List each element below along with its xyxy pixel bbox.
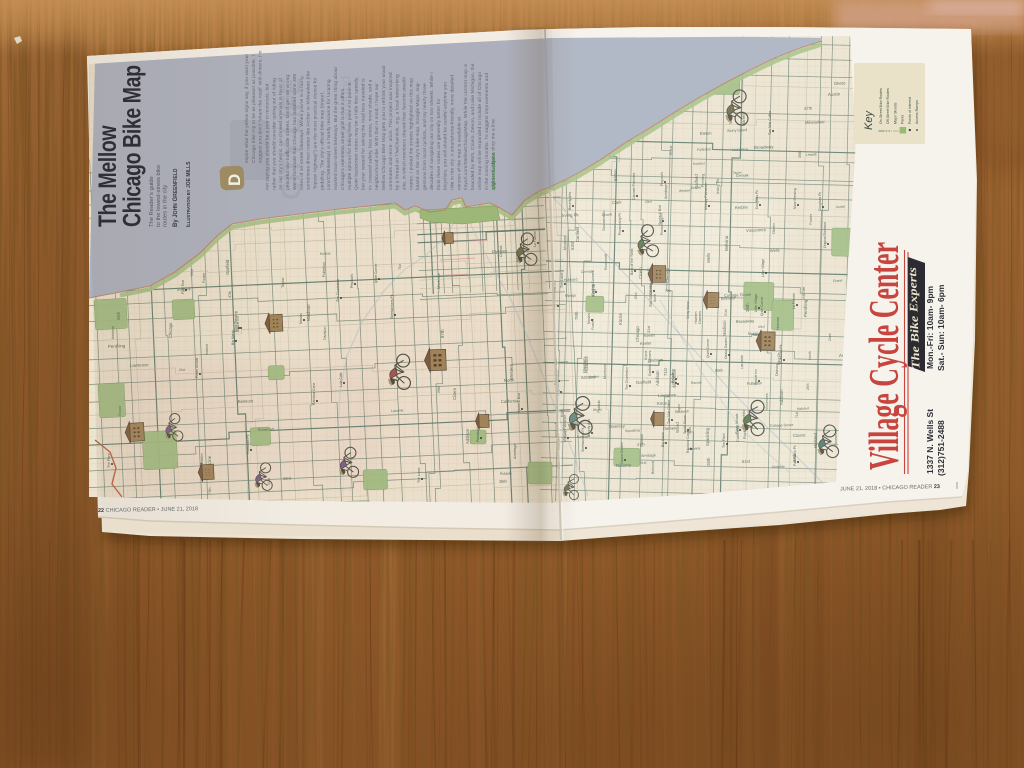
svg-text:@greenfieldjohn: @greenfieldjohn	[491, 152, 497, 190]
svg-text:version of the map is availabl: version of the map is available at	[456, 116, 462, 190]
svg-text:On-Street Bike Routes: On-Street Bike Routes	[879, 88, 883, 124]
svg-text:online map will be expanded to: online map will be expanded to include a…	[477, 72, 483, 190]
svg-text:not saying you should be a jer: not saying you should be a jerk to motor…	[265, 83, 271, 190]
svg-text:Chicago's relentless street gr: Chicago's relentless street grid is that…	[340, 88, 346, 190]
svg-text:com/ChiBikeMap) is a handy res: com/ChiBikeMap) is a handy resource for …	[326, 79, 332, 190]
svg-text:bounded by 95th, Cicero, Devon: bounded by 95th, Cicero, Devon, and Lake…	[470, 63, 476, 190]
svg-text:Major Streets: Major Streets	[893, 102, 897, 124]
svg-text:The Reader’s guide: The Reader’s guide	[149, 176, 155, 227]
svg-text:routes. I picked the streets h: routes. I picked the streets highlighted…	[408, 78, 414, 190]
svg-text:by a thread on TheChainlink. o: by a thread on TheChainlink. org, a loca…	[395, 74, 401, 190]
svg-text:multiple options for biking fr: multiple options for biking from point A…	[347, 81, 353, 190]
svg-text:sometimes direct routes like A: sometimes direct routes like Archer or M…	[306, 71, 312, 190]
svg-text:think these routes are general: think these routes are generally better …	[436, 98, 442, 190]
svg-text:1337 N. Wells St: 1337 N. Wells St	[925, 409, 935, 474]
svg-text:rather that you should conside: rather that you should consider opting o…	[271, 78, 277, 190]
svg-text:on our city's hectic, car-chok: on our city's hectic, car-choked arteria…	[278, 78, 284, 190]
svg-text:site, in which members shared: site, in which members shared their favo…	[402, 77, 408, 190]
svg-text:but your reward for taking the: but your reward for taking the road less…	[360, 78, 366, 190]
svg-text:espite what the yellow signs s: espite what the yellow signs say, if you…	[244, 54, 250, 163]
svg-text:We're fortunate that Chicago h: We're fortunate that Chicago has install…	[292, 73, 298, 190]
svg-text:By JOHN GREENFIELD: By JOHN GREENFIELD	[173, 168, 179, 227]
svg-text:Key: Key	[863, 110, 875, 130]
svg-text:“hipster highway”) are the mos: “hipster highway”) are the most practica…	[313, 77, 319, 190]
svg-text:in the coming months. To sugge: in the coming months. To suggest improve…	[484, 73, 490, 190]
svg-text:tinyurl.com/MellowChicagoMap.: tinyurl.com/MellowChicagoMap. While the …	[463, 63, 469, 190]
svg-text:Points of Interest: Points of Interest	[908, 97, 912, 124]
svg-text:Sat.- Sun: 10am- 6pm: Sat.- Sun: 10am- 6pm	[936, 284, 946, 371]
svg-text:ride in the city. A smartphone: ride in the city. A smartphone-friendly,…	[450, 75, 456, 190]
svg-text:neighborhood vibe. With that i: neighborhood vibe. With that in mind, I …	[374, 83, 380, 190]
svg-text:Access Ramps: Access Ramps	[915, 100, 919, 124]
svg-text:miles of on-street bikeways. W: miles of on-street bikeways. When you're…	[299, 75, 305, 190]
svg-text:decades of navigating our city: decades of navigating our city on two wh…	[429, 72, 435, 190]
svg-text:Off-Street Bike Routes: Off-Street Bike Routes	[886, 88, 890, 124]
svg-text:marked main-street bikeways. B: marked main-street bikeways. But the gre…	[333, 66, 339, 190]
svg-text:suggest you don't “share the r: suggest you don't “share the road” with …	[258, 50, 264, 163]
svg-text:to the lowest-stress bike: to the lowest-stress bike	[156, 165, 162, 227]
svg-text:Chicago Bike Map: Chicago Bike Map	[118, 65, 146, 227]
svg-text:Village Cycle Center: Village Cycle Center	[862, 242, 908, 470]
svg-text:D: D	[225, 174, 244, 186]
svg-text:Parks: Parks	[901, 115, 905, 124]
svg-text:pedaling. The city's official: pedaling. The city's official bike map (…	[319, 92, 325, 190]
svg-text:in- creased safety, less stres: in- creased safety, less stress, more sh…	[367, 79, 373, 190]
svg-text:based on the city's bike map,: based on the city's bike map, Google Map…	[415, 81, 421, 190]
svg-text:(312)751-2488: (312)751-2488	[936, 420, 946, 476]
svg-text:commutes and recre- ation. Thi: commutes and recre- ation. This project …	[388, 72, 394, 190]
svg-text:Quiet backstreet routes may be: Quiet backstreet routes may be a little …	[354, 77, 360, 190]
svg-text:peaceful low-traffic side stre: peaceful low-traffic side streets. Don't…	[285, 73, 291, 190]
svg-text:bicyclists, you still should b: bicyclists, you still should be careful …	[443, 82, 449, 190]
svg-text:Mellow Chicago Bike Map gets y: Mellow Chicago Bike Map gets you to reth…	[381, 65, 387, 190]
svg-text:routes in the city: routes in the city	[163, 185, 169, 227]
svg-text:Mon.-Fri: 10am- 9pm: Mon.-Fri: 10am- 9pm	[925, 285, 935, 369]
svg-text:gestions from local cyclists,: gestions from local cyclists, and my nea…	[422, 83, 428, 190]
svg-text:Chicago bike trip to be as ple: Chicago bike trip to be as pleasant as p…	[251, 55, 257, 163]
